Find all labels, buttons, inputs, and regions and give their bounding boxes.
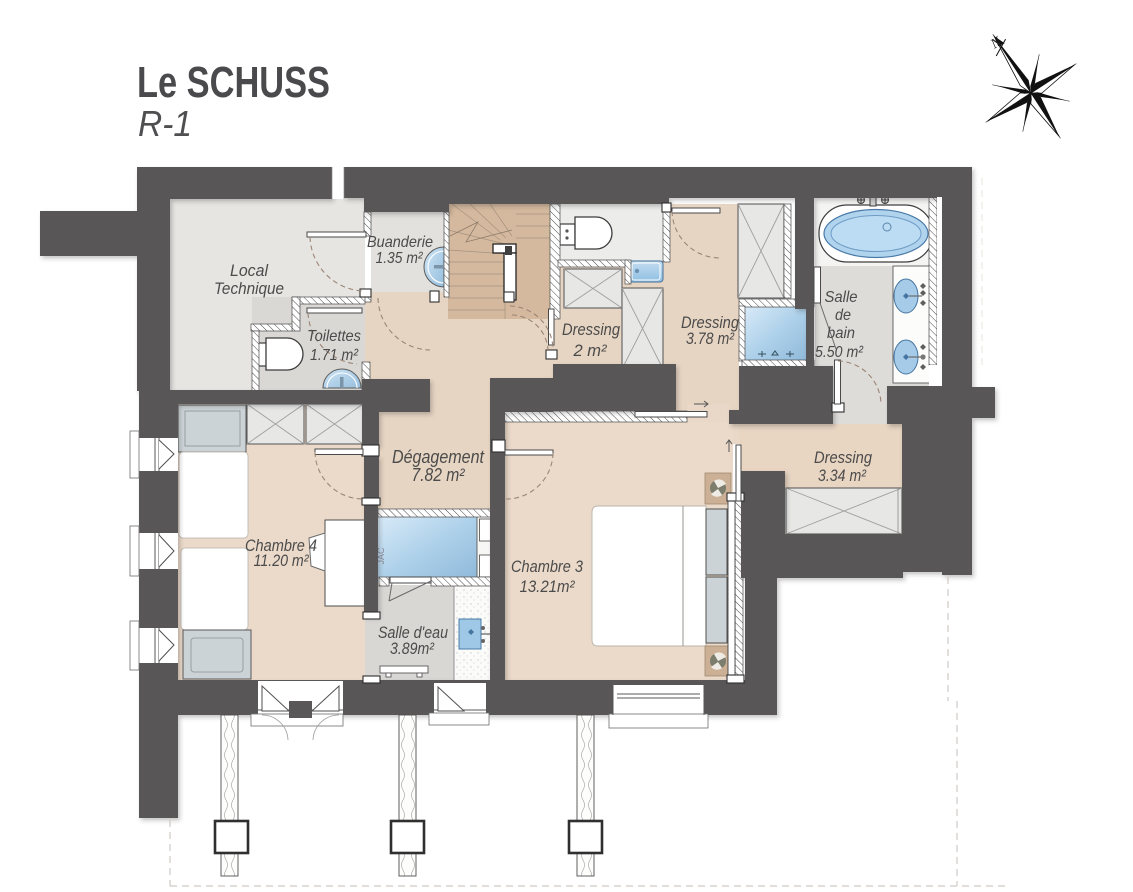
svg-text:Toilettes: Toilettes — [307, 328, 361, 345]
svg-text:3.78 m²: 3.78 m² — [686, 329, 735, 348]
svg-text:3.34 m²: 3.34 m² — [818, 466, 867, 485]
svg-text:2 m²: 2 m² — [573, 341, 608, 360]
svg-text:1.71 m²: 1.71 m² — [310, 347, 359, 364]
svg-text:Buanderie: Buanderie — [367, 234, 433, 251]
svg-text:Le SCHUSS: Le SCHUSS — [137, 58, 330, 107]
svg-text:de: de — [835, 307, 851, 324]
svg-text:1.35 m²: 1.35 m² — [376, 250, 424, 267]
svg-text:Local: Local — [230, 261, 269, 280]
svg-text:Chambre 3: Chambre 3 — [511, 557, 583, 576]
svg-text:Dressing: Dressing — [562, 320, 620, 339]
svg-text:bain: bain — [827, 325, 855, 342]
svg-text:7.82 m²: 7.82 m² — [412, 465, 466, 485]
svg-text:Technique: Technique — [214, 279, 284, 298]
svg-text:3.89m²: 3.89m² — [390, 640, 434, 658]
svg-text:Salle: Salle — [825, 289, 858, 306]
svg-text:R-1: R-1 — [138, 103, 192, 144]
svg-text:Dressing: Dressing — [814, 448, 872, 467]
svg-text:11.20 m²: 11.20 m² — [254, 551, 310, 570]
svg-text:Dégagement: Dégagement — [392, 447, 485, 467]
svg-text:13.21m²: 13.21m² — [520, 577, 576, 596]
svg-text:5.50 m²: 5.50 m² — [815, 344, 864, 361]
